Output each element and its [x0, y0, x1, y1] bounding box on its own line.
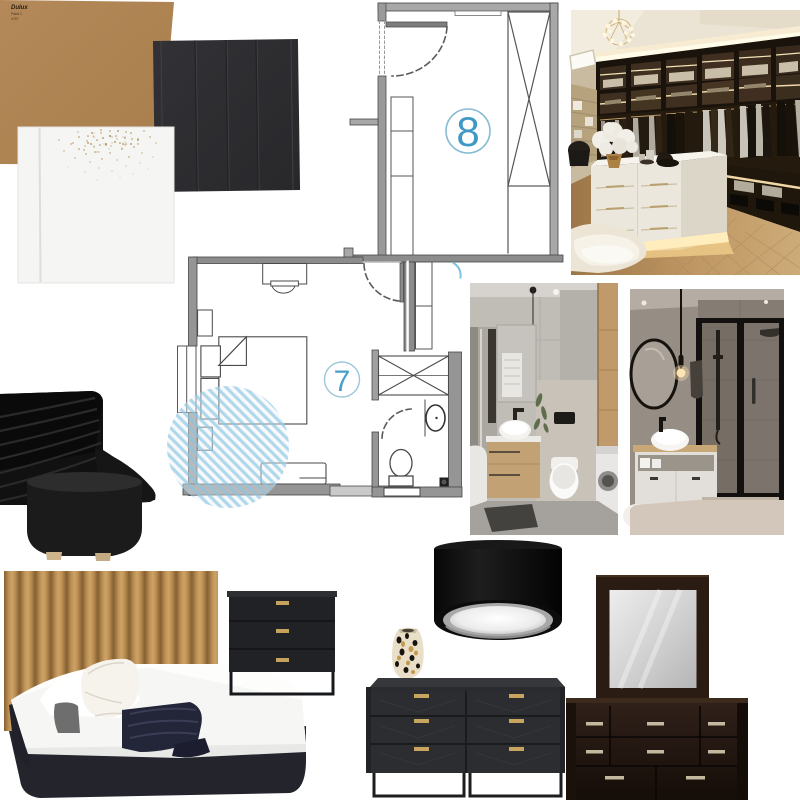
svg-text:Dulux: Dulux	[11, 5, 28, 11]
svg-text:x767: x767	[11, 17, 19, 21]
svg-text:8: 8	[456, 108, 479, 155]
svg-text:7: 7	[334, 365, 351, 398]
svg-text:Paint 1: Paint 1	[11, 12, 22, 16]
